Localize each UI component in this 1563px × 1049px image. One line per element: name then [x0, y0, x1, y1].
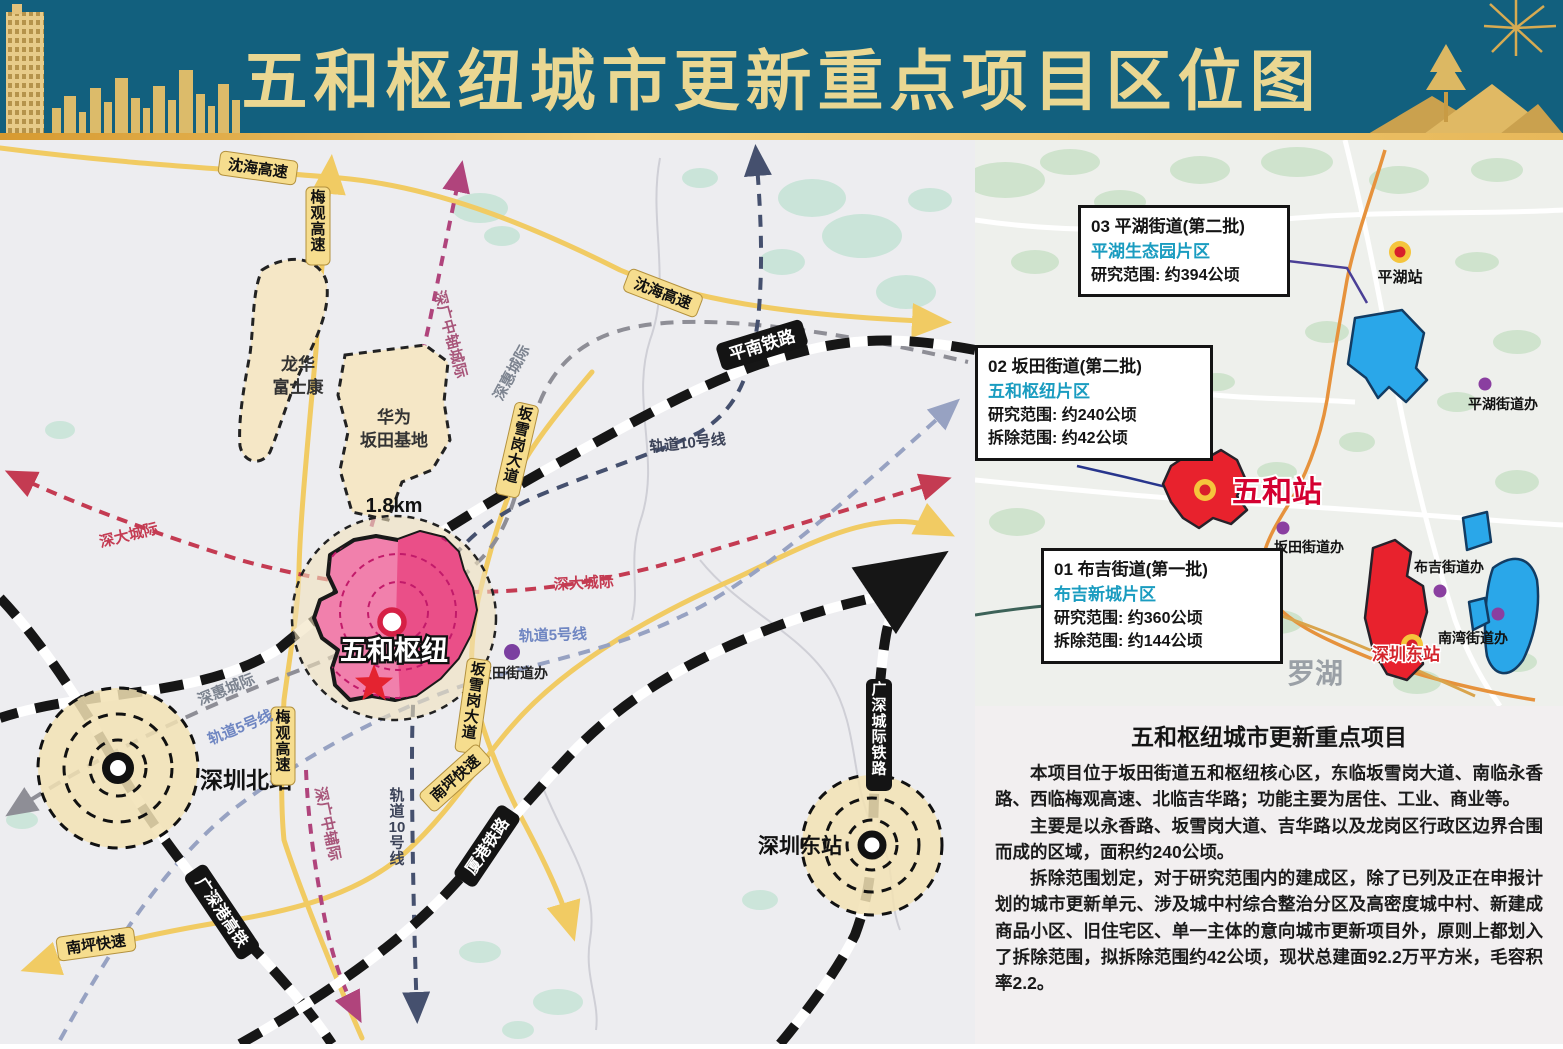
page-title: 五和枢纽城市更新重点项目区位图 [0, 28, 1563, 124]
huawei-label-2: 坂田基地 [360, 430, 428, 450]
banner-gold-strip [0, 133, 1563, 140]
shenzhen-east-station-label: 深圳东站 [1372, 644, 1440, 664]
callout-01-buji: 01 布吉街道(第一批) 布吉新城片区 研究范围: 约360公顷 拆除范围: 约… [1041, 548, 1283, 664]
meiguan-badge-2: 梅观高速 [275, 708, 290, 774]
callout-02-title: 02 坂田街道(第二批) [988, 355, 1200, 380]
guangshengang-badge: 广深港高铁 [192, 874, 252, 951]
title-banner: 五和枢纽城市更新重点项目区位图 [0, 0, 1563, 140]
callout-02-subtitle: 五和枢纽片区 [988, 380, 1200, 405]
shenda-label-2: 深大城际 [553, 572, 614, 593]
callout-02-bantian: 02 坂田街道(第二批) 五和枢纽片区 研究范围: 约240公顷 拆除范围: 约… [975, 345, 1213, 461]
pinghu-office-label: 平湖街道办 [1468, 396, 1538, 412]
shenhui-label-2: 深惠城际 [490, 342, 534, 403]
station-dot [106, 756, 130, 780]
panel-paragraph-2: 主要是以永香路、坂雪岗大道、吉华路以及龙岗区行政区边界合围而成的区域，面积约24… [995, 813, 1543, 866]
callout-03-title: 03 平湖街道(第二批) [1091, 215, 1277, 240]
nanwan-office-label: 南湾街道办 [1438, 630, 1508, 646]
industrial-areas: 龙华 富士康 华为 坂田基地 [240, 259, 450, 520]
inset-district-map: 平湖站 平湖街道办 五和站 坂田街道办 布吉街道办 南湾街道办 深圳东站 罗湖 … [975, 140, 1563, 706]
longhua-label-2: 富士康 [273, 377, 325, 397]
shenhai-expressway [0, 148, 942, 322]
meiguan-badge-1: 梅观高速 [310, 188, 325, 254]
callout-02-study-range: 研究范围: 约240公顷 [988, 404, 1200, 427]
callout-02-demolition-range: 拆除范围: 约42公顷 [988, 427, 1200, 450]
callout-03-study-range: 研究范围: 约394公顷 [1091, 264, 1277, 287]
callout-01-subtitle: 布吉新城片区 [1054, 583, 1270, 608]
callout-03-pinghu: 03 平湖街道(第二批) 平湖生态园片区 研究范围: 约394公顷 [1078, 205, 1290, 297]
shenda-label-1: 深大城际 [97, 519, 160, 551]
project-description-panel: 五和枢纽城市更新重点项目 本项目位于坂田街道五和枢纽核心区，东临坂雪岗大道、南临… [975, 706, 1563, 1044]
callout-01-title: 01 布吉街道(第一批) [1054, 558, 1270, 583]
wuhe-station-label: 五和站 [1232, 476, 1322, 509]
callout-01-study-range: 研究范围: 约360公顷 [1054, 607, 1270, 630]
wuhe-hub-station-dot [380, 610, 404, 634]
bantian-office-label: 坂田街道办 [1274, 539, 1344, 555]
main-location-map: 龙华 富士康 华为 坂田基地 1.8km 五和枢纽 深圳北站 深圳东站 [0, 140, 975, 1044]
shenzhen-east-station: 深圳东站 [758, 775, 942, 915]
shenzhen-east-label: 深圳东站 [758, 834, 842, 858]
rail10-label-1: 轨道10号线 [648, 430, 726, 456]
buji-office-label: 布吉街道办 [1414, 559, 1484, 575]
radius-label: 1.8km [366, 495, 423, 517]
wuhe-hub-label: 五和枢纽 [340, 635, 448, 666]
panel-title: 五和枢纽城市更新重点项目 [995, 718, 1543, 752]
panel-paragraph-1: 本项目位于坂田街道五和枢纽核心区，东临坂雪岗大道、南临永香路、西临梅观高速、北临… [995, 760, 1543, 813]
guangshen-intercity-badge: 广深城际铁路 [871, 680, 887, 778]
panel-paragraph-3: 拆除范围划定，对于研究范围内的建成区，除了已列及正在申报计划的城市更新单元、涉及… [995, 865, 1543, 996]
callout-03-subtitle: 平湖生态园片区 [1091, 240, 1277, 265]
rail10-label-2: 轨道10号线 [389, 786, 406, 868]
buji-region-north [1463, 512, 1491, 550]
callout-01-demolition-range: 拆除范围: 约144公顷 [1054, 630, 1270, 653]
rail5-label-2: 轨道5号线 [518, 625, 587, 645]
main-map-canvas: 龙华 富士康 华为 坂田基地 1.8km 五和枢纽 深圳北站 深圳东站 [0, 140, 975, 1044]
shenzhen-north-station: 深圳北站 [38, 688, 292, 848]
station-dot [861, 834, 883, 856]
luohu-district-label: 罗湖 [1287, 658, 1343, 689]
pinghu-station-label: 平湖站 [1377, 268, 1422, 286]
longhua-label-1: 龙华 [280, 354, 315, 374]
rail5-label-1: 轨道5号线 [205, 706, 275, 748]
zhongzhou-label-south: 深广中辅际 [311, 785, 344, 862]
purple-dot-icon [504, 644, 520, 660]
huawei-label-1: 华为 [377, 407, 411, 427]
pinghu-region [1348, 310, 1427, 402]
